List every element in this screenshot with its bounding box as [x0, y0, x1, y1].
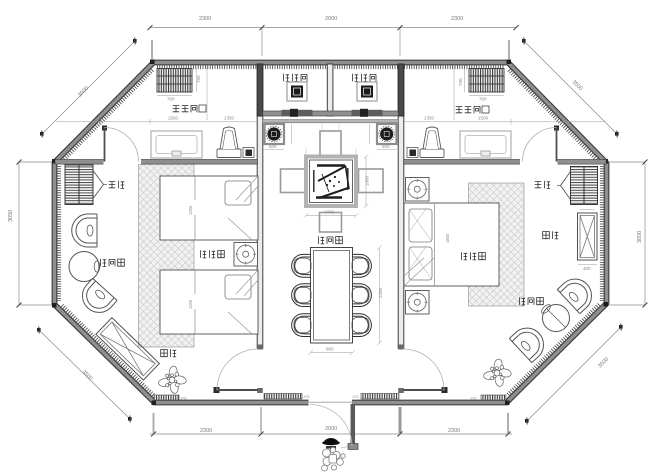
svg-text:2300: 2300 — [448, 428, 460, 434]
svg-text:400: 400 — [583, 266, 591, 271]
svg-text:JYD: JYD — [470, 397, 477, 401]
svg-text:JYD: JYD — [352, 395, 359, 399]
svg-text:JYD: JYD — [180, 397, 187, 401]
svg-text:1350: 1350 — [224, 116, 235, 121]
svg-text:1500: 1500 — [168, 116, 179, 121]
svg-text:1200: 1200 — [188, 299, 193, 309]
svg-text:750: 750 — [196, 75, 201, 83]
svg-text:2200: 2200 — [378, 287, 383, 298]
svg-text:3050: 3050 — [637, 231, 643, 243]
svg-text:2000: 2000 — [325, 426, 337, 432]
svg-text:700: 700 — [167, 97, 175, 102]
svg-text:1000: 1000 — [365, 175, 370, 186]
svg-text:2300: 2300 — [199, 16, 211, 22]
svg-text:750: 750 — [458, 78, 463, 86]
svg-text:2300: 2300 — [451, 16, 463, 22]
svg-text:700: 700 — [479, 97, 487, 102]
svg-text:2300: 2300 — [200, 428, 212, 434]
svg-text:JYD: JYD — [303, 395, 310, 399]
svg-text:900: 900 — [326, 347, 334, 352]
svg-text:1200: 1200 — [188, 205, 193, 215]
svg-text:600: 600 — [382, 144, 390, 149]
svg-text:1000: 1000 — [324, 210, 335, 215]
svg-text:600: 600 — [269, 144, 277, 149]
svg-text:1800: 1800 — [445, 233, 450, 243]
svg-text:1350: 1350 — [424, 116, 435, 121]
svg-text:1500: 1500 — [478, 116, 489, 121]
svg-text:2000: 2000 — [325, 16, 337, 22]
svg-text:3050: 3050 — [8, 210, 14, 222]
